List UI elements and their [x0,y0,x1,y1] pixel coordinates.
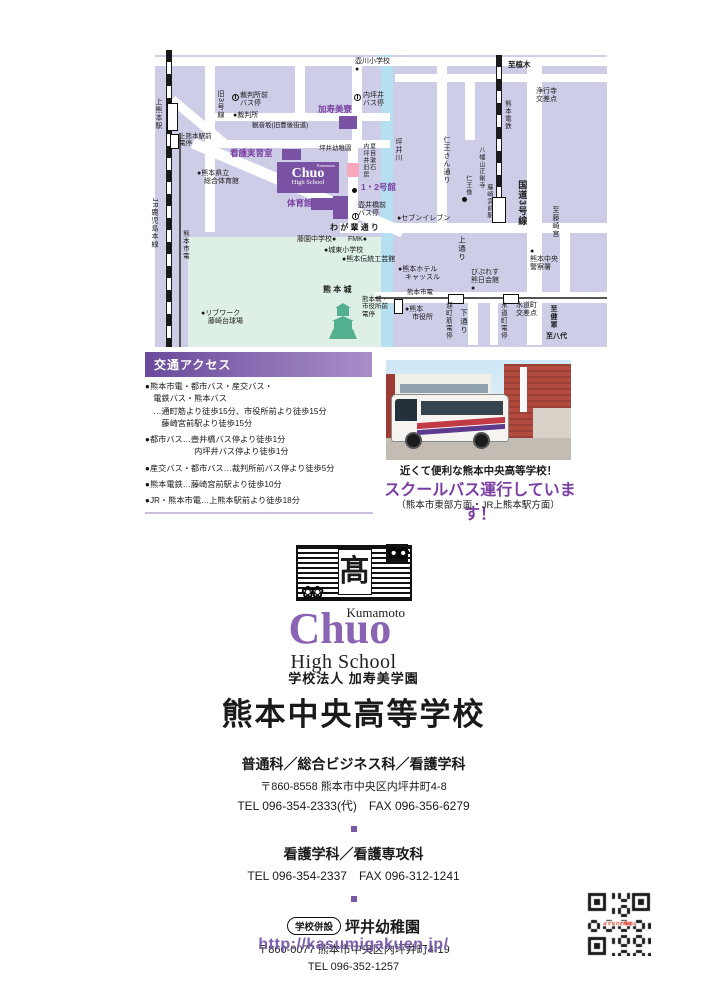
map-label: 壺川小学校 ● [355,58,390,74]
kindergarten-name: 坪井幼稚園 [345,919,420,936]
access-item: ●熊本市電・都市バス・産交バス・ 電鉄バス・熊本バス …通町筋より徒歩15分、市… [145,381,372,430]
building-sign [520,367,527,412]
nursing-departments: 看護学科／看護専攻科 [0,844,707,864]
map-dot [462,197,467,202]
sakura-icon: ❀❀ [302,583,321,601]
map-label: ●熊本県立 総合体育館 [197,170,239,186]
map-label: 1・2号館 [361,183,396,193]
map-label: 加寿美寮 [318,105,352,115]
area-map: Kumamoto Chuo High School 壺川小学校 ●至植木浄行寺 … [145,48,607,348]
emblem-kanji: 髙 [338,549,372,595]
school-logo: ❀❀ ❀❀ 髙 Kumamoto Chuo High School [0,545,707,675]
access-item: ●JR・熊本市電…上熊本駅前より徒歩18分 [145,495,372,507]
map-label: 藤崎宮前駅 [485,184,492,219]
corporation-name: 学校法人 加寿美学園 [0,668,707,687]
school-bus [391,394,507,448]
map-label: 至植木 [508,61,531,70]
map-label: 至八代 [546,333,567,341]
access-item: ●産交バス・都市バス…裁判所前バス停より徒歩5分 [145,463,372,475]
map-label: ●熊本伝統工芸館 [342,256,395,264]
square-divider [351,826,357,832]
map-labels: 壺川小学校 ●至植木浄行寺 交差点熊本電鉄旧3号線裁判所前 バス停●裁判所観音坂… [145,48,607,348]
map-label: 仁王像 [464,175,471,196]
map-label: 裁判所前 バス停 [240,92,268,108]
map-label: 仁王さん通り [442,136,450,184]
map-label: 下通り [459,309,468,335]
departments: 普通科／総合ビジネス科／看護学科 [0,754,707,774]
map-label: 上熊本駅前 電停 [179,133,212,148]
map-label: 壺井橋前 バス停 [358,202,386,218]
map-label: わ が 輩 通 り [330,223,379,232]
map-label: 内坪井 バス停 [363,92,384,108]
logo-wordmark: Kumamoto Chuo High School [289,603,419,675]
school-name: 熊本中央高等学校 [0,689,707,734]
map-label: 観音坂(旧豊後街道) [252,122,308,129]
map-label: 熊 本 城 [323,285,351,294]
map-label: ● 熊本中央 警察署 [530,248,558,272]
map-label: ●熊本 市役所 [405,306,433,322]
map-label: びぷれす 熊日会館 ● [471,269,499,293]
map-label: 体育館 [287,199,313,209]
map-label: 八幡山正剛寺 [477,147,484,189]
sakura-icon: ❀❀ [386,544,407,562]
map-label: 通町筋電停 [444,302,451,340]
bus-subcaption: （熊本市東部方面・JR上熊本駅方面） [378,497,578,511]
map-label: FMK● [348,236,367,244]
map-label: 熊本城・ 市役所前 電停 [362,296,388,318]
logo-chuo: Chuo [289,607,392,651]
map-label: 上熊本駅 [154,98,162,130]
map-label: 看護実習室 [230,149,273,159]
map-label: ●裁判所 [233,112,258,120]
school-emblem: ❀❀ ❀❀ 髙 [296,545,412,601]
access-item: ●都市バス…壺井橋バス停より徒歩1分 内坪井バス停より徒歩1分 [145,434,372,459]
map-label: 水道町電停 [499,302,506,340]
map-label: ●城東小学校 [324,247,363,255]
address-main: 〒860-8558 熊本市中央区内坪井町4-8 [0,778,707,794]
map-label: 浄行寺 交差点 [536,88,557,104]
access-title: 交通アクセス [145,352,372,377]
map-label: JR鹿児島本線 [150,198,158,249]
qr-center-label: キミだけの情報!! [602,921,635,927]
map-label: 熊本電鉄 [503,100,510,130]
map-label: 藤園中学校● [297,236,336,244]
map-label: 夏目漱石 内坪井旧居 [361,143,375,178]
access-box: 交通アクセス ●熊本市電・都市バス・産交バス・ 電鉄バス・熊本バス …通町筋より… [145,352,372,508]
tel-fax-main: TEL 096-354-2333(代) FAX 096-356-6279 [0,797,707,814]
divider-line [145,512,373,514]
map-label: 国道3号線 [517,180,527,226]
map-label: ●セブンイレブン [397,215,450,223]
square-divider [351,896,357,902]
map-label: 熊本市電 [407,289,433,296]
map-label: 熊本市電 [181,230,188,260]
map-label: 水道町 交差点 [516,302,537,318]
school-bus-photo [386,360,571,460]
map-label: ●リブワーク 藤崎台球場 [201,310,243,326]
map-dot [352,188,357,193]
tel-fax-nursing: TEL 096-354-2337 FAX 096-312-1241 [0,867,707,884]
map-label: 坪井幼稚園 [319,145,352,152]
access-item: ●熊本電鉄…藤崎宮前駅より徒歩10分 [145,479,372,491]
qr-code: キミだけの情報!! [587,892,651,956]
map-label: 至健軍 [549,305,557,329]
annex-badge: 学校併設 [287,917,341,935]
tel-kindergarten: TEL 096-352-1257 [0,961,707,973]
map-label: 上通り [457,236,466,262]
map-label: 旧3号線 [216,90,224,119]
map-label: ●熊本ホテル キャッスル [398,266,440,282]
map-label: 至藤崎宮 [551,206,559,238]
map-label: 坪井川 [394,138,402,162]
brochure-page: Kumamoto Chuo High School 壺川小学校 ●至植木浄行寺 … [0,0,707,1000]
